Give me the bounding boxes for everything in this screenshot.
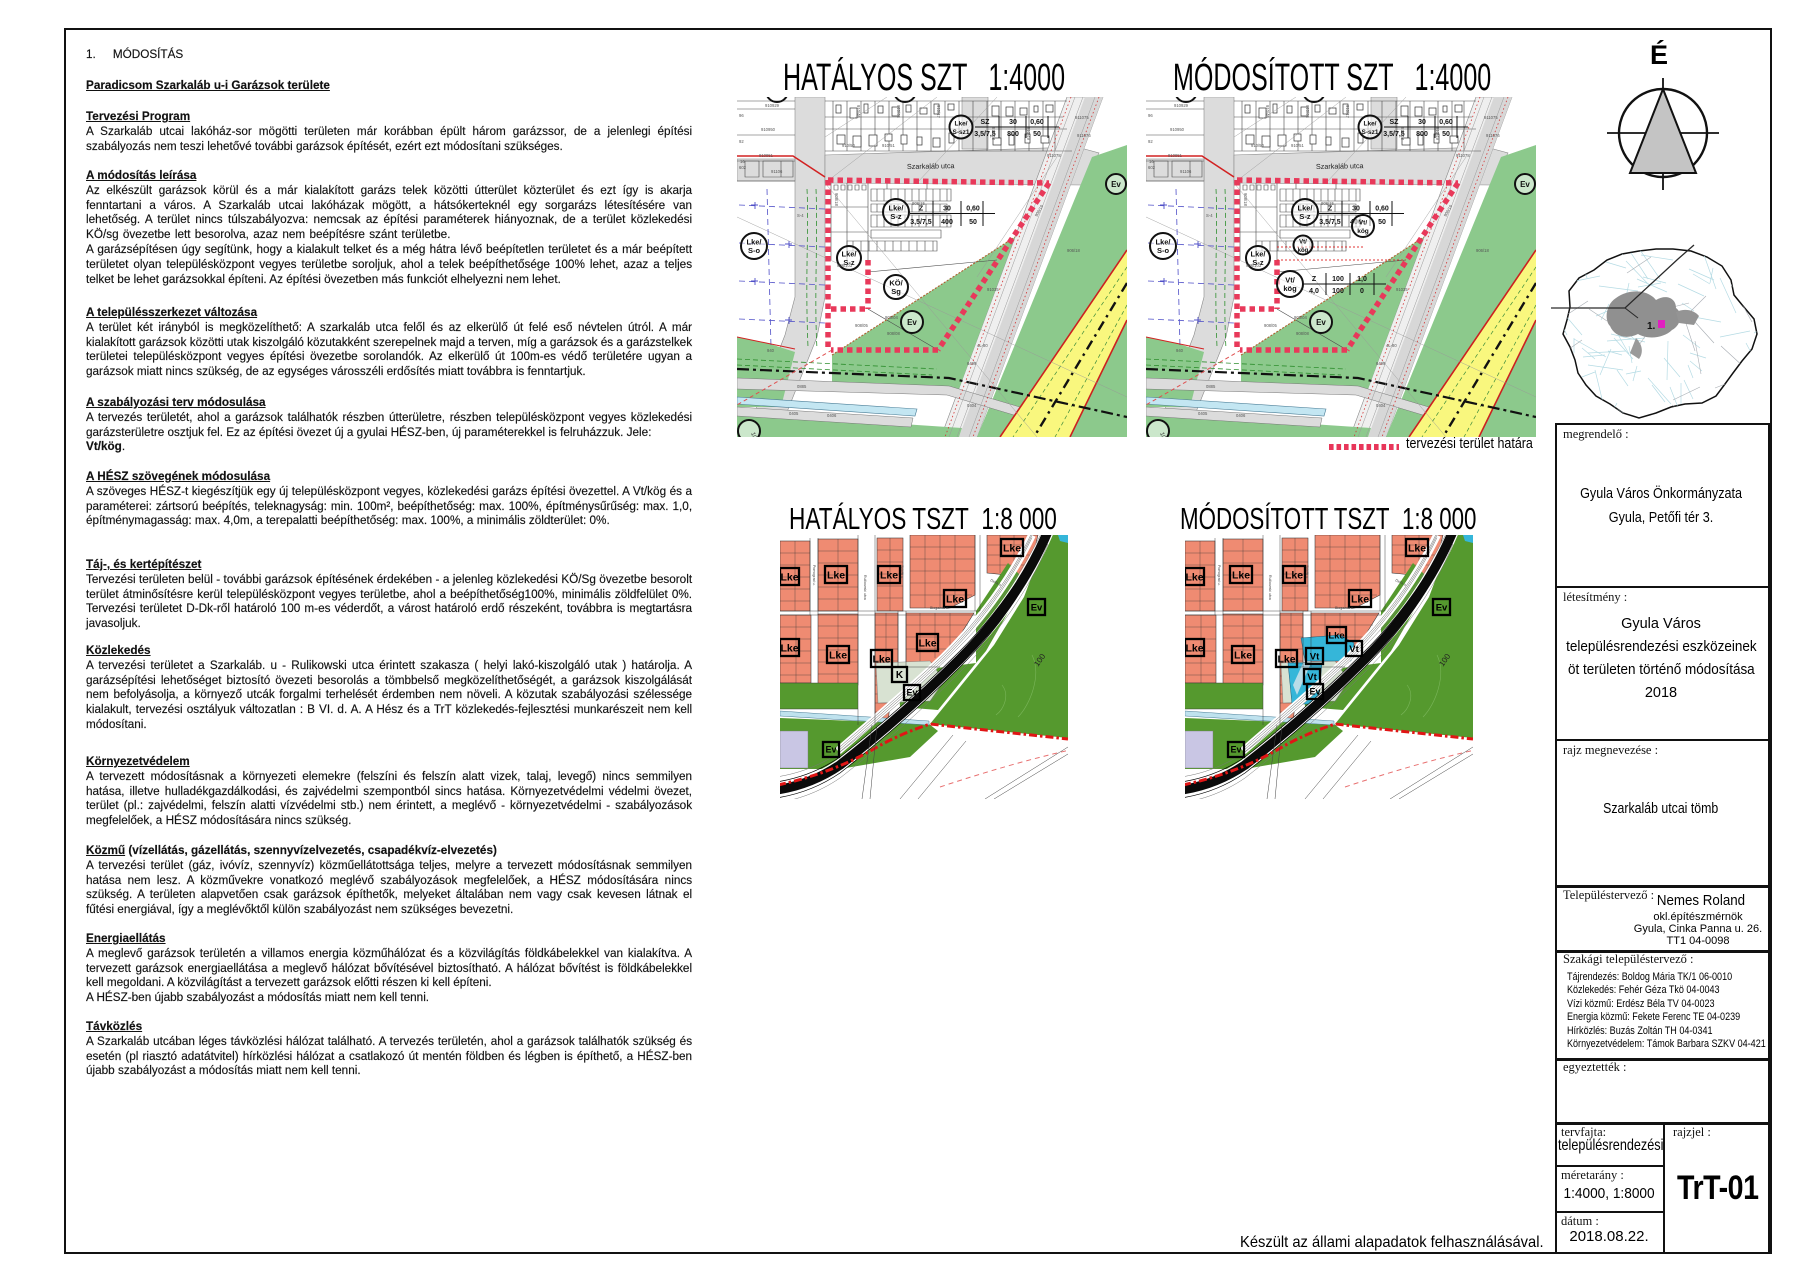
svg-text:30: 30 — [1352, 206, 1360, 213]
svg-text:910/51: 910/51 — [882, 143, 895, 148]
svg-text:910929: 910929 — [765, 103, 780, 108]
svg-text:4L-80: 4L-80 — [1386, 343, 1397, 348]
svg-text:Ev: Ev — [1309, 687, 1320, 697]
svg-text:Ev: Ev — [1031, 602, 1043, 613]
svg-text:910/46: 910/46 — [1305, 105, 1310, 118]
svg-text:0404: 0404 — [1376, 403, 1386, 408]
svg-text:S-sz1: S-sz1 — [953, 129, 970, 136]
svg-text:906/18: 906/18 — [1067, 248, 1080, 253]
svg-text:Rulikowski utca: Rulikowski utca — [1268, 575, 1272, 600]
svg-text:K: K — [896, 670, 904, 681]
svg-text:908/18: 908/18 — [834, 193, 839, 206]
svg-text:908/04: 908/04 — [1294, 315, 1307, 320]
svg-text:908/04: 908/04 — [885, 315, 898, 320]
svg-text:910/49: 910/49 — [1026, 127, 1031, 140]
svg-text:911075: 911075 — [1484, 115, 1498, 120]
svg-text:kög: kög — [1283, 284, 1297, 293]
svg-text:Ev: Ev — [907, 318, 917, 327]
svg-text:Ev: Ev — [1436, 602, 1448, 613]
svg-text:906/18: 906/18 — [1476, 248, 1489, 253]
svg-text:Z: Z — [1328, 206, 1333, 213]
svg-text:Ev: Ev — [906, 688, 917, 698]
svg-text:Ev: Ev — [1111, 180, 1121, 189]
svg-text:96: 96 — [739, 113, 744, 118]
svg-text:Lke: Lke — [780, 642, 798, 654]
svg-text:Lke/: Lke/ — [954, 121, 967, 128]
svg-text:908/08: 908/08 — [887, 331, 900, 336]
svg-text:50: 50 — [1442, 131, 1450, 138]
svg-text:910950: 910950 — [1170, 127, 1185, 132]
svg-text:3,5/7,5: 3,5/7,5 — [1319, 219, 1341, 226]
svg-text:16: 16 — [740, 159, 745, 164]
svg-text:Lke/: Lke/ — [1363, 121, 1376, 128]
svg-text:910951: 910951 — [759, 153, 774, 158]
svg-text:Szarkaláb utca: Szarkaláb utca — [1316, 161, 1364, 171]
svg-text:Vt: Vt — [1307, 672, 1317, 683]
svg-text:4L-80: 4L-80 — [977, 343, 988, 348]
svg-text:6499: 6499 — [1376, 361, 1386, 366]
svg-text:6499: 6499 — [967, 361, 977, 366]
svg-text:910/46: 910/46 — [896, 105, 901, 118]
svg-text:Rulikowski utca: Rulikowski utca — [863, 575, 867, 600]
svg-text:0,60: 0,60 — [1439, 119, 1453, 126]
svg-text:Lke: Lke — [880, 569, 898, 581]
svg-text:910950: 910950 — [761, 127, 776, 132]
svg-text:0,60: 0,60 — [1030, 119, 1044, 126]
svg-text:50: 50 — [1378, 219, 1386, 226]
svg-text:S-z: S-z — [1299, 212, 1311, 221]
svg-text:Ev: Ev — [1520, 180, 1530, 189]
svg-text:kög: kög — [1298, 248, 1309, 254]
svg-text:Ev: Ev — [1316, 318, 1326, 327]
svg-text:602: 602 — [739, 165, 747, 170]
svg-text:S-o: S-o — [748, 246, 761, 255]
svg-text:Sióréti u.: Sióréti u. — [900, 565, 904, 579]
svg-text:910/45: 910/45 — [1265, 105, 1270, 118]
svg-text:0885: 0885 — [797, 384, 807, 389]
svg-text:Z: Z — [919, 206, 924, 213]
svg-text:Lke: Lke — [872, 653, 890, 665]
svg-text:Z: Z — [1312, 276, 1317, 283]
svg-text:908/15: 908/15 — [912, 201, 925, 206]
svg-text:940: 940 — [1176, 348, 1184, 353]
svg-text:908/103: 908/103 — [1246, 263, 1262, 268]
svg-text:910/51: 910/51 — [1291, 143, 1304, 148]
svg-text:908/08: 908/08 — [1296, 331, 1309, 336]
svg-text:91106: 91106 — [1180, 169, 1192, 174]
svg-text:911078: 911078 — [1456, 153, 1470, 158]
svg-text:S-4: S-4 — [797, 213, 804, 218]
svg-text:0406: 0406 — [1236, 413, 1246, 418]
svg-text:911075: 911075 — [1075, 115, 1089, 120]
svg-text:910929: 910929 — [1174, 103, 1189, 108]
svg-text:908/18: 908/18 — [1243, 193, 1248, 206]
svg-text:Lke: Lke — [780, 571, 798, 583]
svg-text:910/48: 910/48 — [1400, 127, 1405, 140]
svg-text:908/05: 908/05 — [1264, 323, 1277, 328]
svg-text:1,0: 1,0 — [1357, 276, 1367, 283]
svg-text:400: 400 — [941, 219, 953, 226]
svg-text:Lke: Lke — [1408, 542, 1426, 554]
svg-text:Vt: Vt — [1349, 644, 1359, 655]
svg-text:kög: kög — [1357, 228, 1369, 235]
svg-text:Sióréti u.: Sióréti u. — [1305, 565, 1309, 579]
svg-text:3,5/7,5: 3,5/7,5 — [910, 219, 932, 226]
svg-text:911076: 911076 — [1486, 133, 1500, 138]
svg-text:910/47: 910/47 — [1345, 105, 1350, 118]
svg-text:910/47: 910/47 — [936, 105, 941, 118]
svg-text:0405: 0405 — [1198, 411, 1208, 416]
svg-text:Lke: Lke — [1277, 653, 1295, 665]
svg-text:96: 96 — [1148, 113, 1153, 118]
svg-text:Lke: Lke — [1328, 630, 1344, 641]
svg-text:92: 92 — [739, 139, 744, 144]
svg-text:0404: 0404 — [967, 403, 977, 408]
svg-text:S-sz1: S-sz1 — [1362, 129, 1379, 136]
svg-text:Lke: Lke — [1185, 642, 1203, 654]
svg-text:Lke: Lke — [1003, 542, 1021, 554]
svg-text:908/103: 908/103 — [837, 263, 853, 268]
svg-text:SZ: SZ — [981, 119, 991, 126]
svg-text:S-o: S-o — [1157, 246, 1170, 255]
svg-text:Lke: Lke — [1185, 571, 1203, 583]
svg-text:800: 800 — [1007, 131, 1019, 138]
svg-text:910/45: 910/45 — [856, 105, 861, 118]
svg-text:30: 30 — [943, 206, 951, 213]
svg-text:S-z: S-z — [890, 212, 902, 221]
svg-text:100: 100 — [1332, 288, 1344, 295]
svg-text:Lke: Lke — [829, 649, 847, 661]
svg-text:100: 100 — [1332, 276, 1344, 283]
svg-text:908/15: 908/15 — [1321, 201, 1334, 206]
svg-text:602: 602 — [1148, 165, 1156, 170]
svg-text:0405: 0405 — [789, 411, 799, 416]
svg-text:Pomograd u.: Pomograd u. — [812, 565, 816, 586]
svg-text:91106: 91106 — [771, 169, 783, 174]
svg-text:Vt/: Vt/ — [1359, 220, 1368, 227]
svg-text:Ev: Ev — [825, 745, 836, 755]
svg-text:92: 92 — [1148, 139, 1153, 144]
svg-text:Vt: Vt — [1310, 651, 1320, 662]
svg-text:50: 50 — [1033, 131, 1041, 138]
svg-text:1.: 1. — [1647, 321, 1656, 332]
svg-text:910/50: 910/50 — [842, 143, 855, 148]
svg-text:Lke: Lke — [827, 569, 845, 581]
svg-text:30: 30 — [1009, 119, 1017, 126]
svg-text:910951: 910951 — [1168, 153, 1183, 158]
svg-text:91035: 91035 — [1396, 287, 1408, 292]
svg-text:Lke: Lke — [946, 593, 964, 605]
svg-text:Vt/: Vt/ — [1299, 240, 1307, 246]
svg-text:Lke: Lke — [1285, 569, 1303, 581]
svg-text:910/50: 910/50 — [1251, 143, 1264, 148]
svg-text:911078: 911078 — [1047, 153, 1061, 158]
svg-text:Ev: Ev — [1230, 745, 1241, 755]
svg-text:Lke: Lke — [918, 637, 936, 649]
svg-text:16: 16 — [1149, 159, 1154, 164]
svg-text:0: 0 — [1360, 288, 1364, 295]
svg-text:800: 800 — [1416, 131, 1428, 138]
svg-text:Lke: Lke — [1232, 569, 1250, 581]
svg-text:910/48: 910/48 — [991, 127, 996, 140]
svg-text:0,60: 0,60 — [1375, 206, 1389, 213]
svg-text:Biogazda u.: Biogazda u. — [930, 606, 949, 610]
svg-text:Biogazda u.: Biogazda u. — [1335, 606, 1354, 610]
svg-text:50: 50 — [969, 219, 977, 226]
svg-text:910/49: 910/49 — [1435, 127, 1440, 140]
svg-text:0,60: 0,60 — [966, 206, 980, 213]
svg-text:91035: 91035 — [987, 287, 999, 292]
svg-text:SZ: SZ — [1390, 119, 1400, 126]
svg-text:Lke: Lke — [1351, 593, 1369, 605]
svg-text:S-4: S-4 — [1206, 213, 1213, 218]
svg-text:Pomograd u.: Pomograd u. — [1217, 565, 1221, 586]
svg-text:940: 940 — [767, 348, 775, 353]
svg-text:4,0: 4,0 — [1309, 288, 1319, 295]
svg-text:0406: 0406 — [827, 413, 837, 418]
svg-text:908/05: 908/05 — [855, 323, 868, 328]
svg-text:Sg: Sg — [891, 287, 901, 296]
svg-text:Lke: Lke — [1234, 649, 1252, 661]
svg-text:Szarkaláb utca: Szarkaláb utca — [907, 161, 955, 171]
svg-text:30: 30 — [1418, 119, 1426, 126]
svg-text:911076: 911076 — [1077, 133, 1091, 138]
svg-text:0885: 0885 — [1206, 384, 1216, 389]
